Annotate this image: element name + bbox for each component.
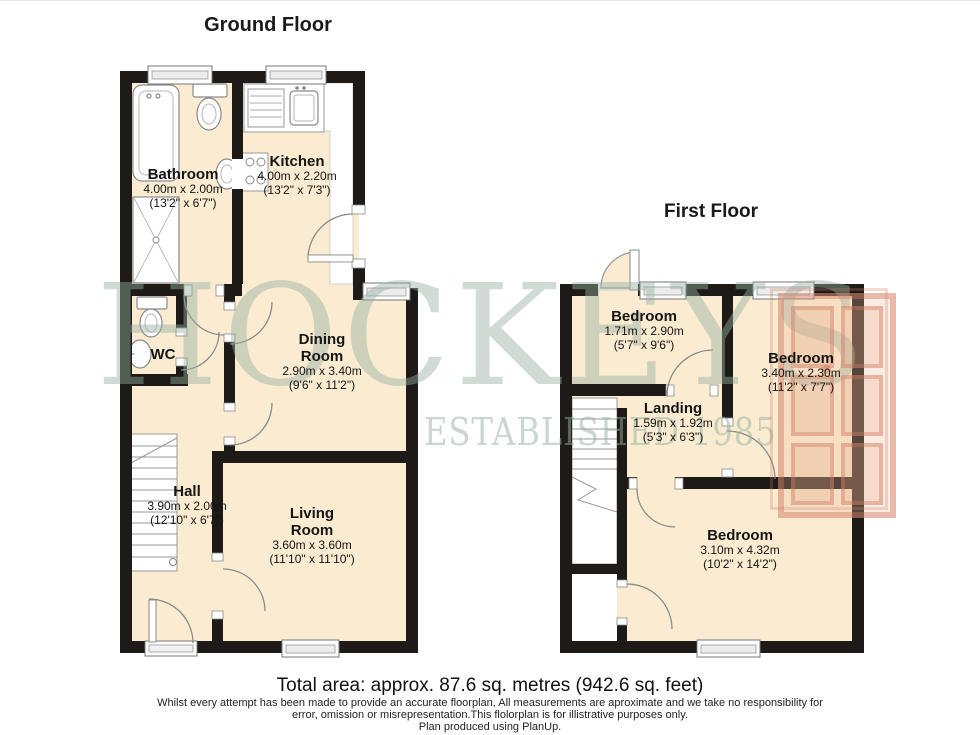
shower-icon <box>133 197 179 283</box>
kitchen-sink-icon <box>244 84 324 132</box>
understairs-closet <box>572 574 617 641</box>
floorplan-drawing <box>0 1 980 735</box>
first-floor-plan <box>560 250 864 657</box>
floorplan-page: HOCKEYS ESTABLISHED 1985 Ground Floor Fi… <box>0 0 980 735</box>
exterior-door <box>601 250 639 290</box>
wc-basin-icon <box>129 340 151 368</box>
bathtub-icon <box>133 85 179 181</box>
staircase-first-floor <box>572 398 617 564</box>
ground-floor-plan <box>120 66 418 657</box>
bedroom3-door-gap <box>637 477 675 489</box>
sink-wall-notch <box>232 159 243 189</box>
hob-icon <box>242 153 268 191</box>
staircase <box>131 434 177 571</box>
